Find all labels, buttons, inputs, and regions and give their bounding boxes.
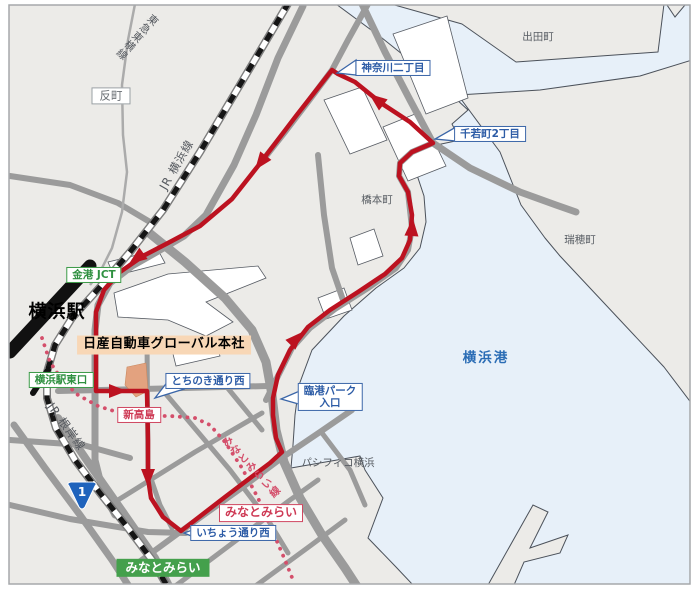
station-label-shin-takashima: 新高島 — [117, 407, 161, 423]
label-nissan-global-hq: 日産自動車グローバル本社 — [77, 336, 251, 355]
district-label-mizuhocho: 瑞穂町 — [564, 234, 596, 246]
callout-icho-dori-west: いちょう通り西 — [190, 525, 276, 541]
district-label-hashimotocho: 橋本町 — [361, 194, 393, 206]
route-map: 1 反町 東急東横線 JR 横浜線 JR 根岸線 みなとみらい線 神奈川二丁目 … — [0, 0, 699, 590]
rinko-park-line1: 臨港パーク — [304, 385, 357, 397]
district-label-pacifico-yokohama: パシフィコ横浜 — [301, 457, 374, 469]
rinko-park-line2: 入口 — [304, 397, 357, 409]
district-label-idetacho: 出田町 — [522, 31, 554, 43]
water-label-yokohama-port: 横浜港 — [463, 351, 510, 367]
label-yokohama-sta-east-exit: 横浜駅東口 — [29, 372, 94, 388]
callout-chiwakacho-2chome: 千若町2丁目 — [454, 126, 526, 142]
station-label-yokohama: 横浜駅 — [29, 303, 86, 324]
callout-tochinoki-dori-west: とちのき通り西 — [165, 373, 250, 389]
callout-rinko-park-entrance: 臨港パーク 入口 — [298, 383, 363, 411]
station-label-tammachi: 反町 — [92, 87, 131, 104]
route-1-number: 1 — [78, 485, 86, 499]
station-label-minatomirai-green: みなとみらい — [116, 559, 209, 577]
callout-kanagawa-nichome: 神奈川二丁目 — [356, 60, 431, 76]
label-kinko-jct: 金港 JCT — [66, 267, 121, 283]
station-label-minatomirai: みなとみらい — [219, 504, 303, 522]
